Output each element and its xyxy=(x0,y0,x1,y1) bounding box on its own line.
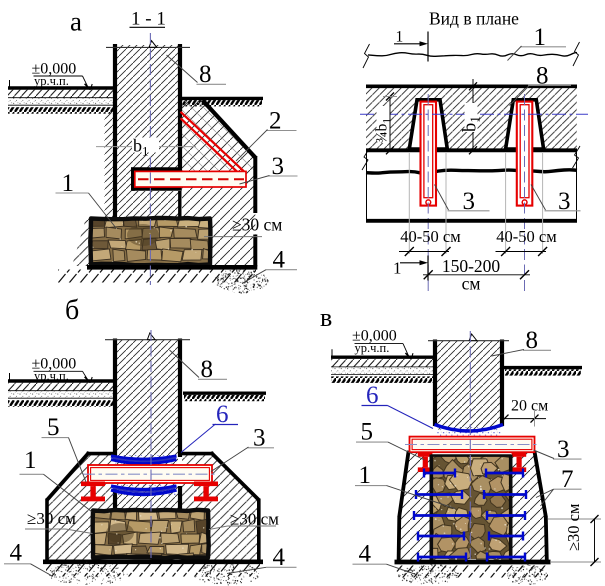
svg-text:Вид в плане: Вид в плане xyxy=(429,9,519,29)
svg-text:а: а xyxy=(70,7,82,37)
svg-text:1: 1 xyxy=(393,259,402,278)
svg-text:≥30 см: ≥30 см xyxy=(232,215,282,235)
svg-text:1 - 1: 1 - 1 xyxy=(131,9,166,30)
svg-text:см: см xyxy=(462,274,481,294)
svg-text:в: в xyxy=(320,303,332,332)
svg-text:б: б xyxy=(65,295,79,326)
svg-text:20 см: 20 см xyxy=(511,398,548,415)
svg-text:5: 5 xyxy=(361,419,374,446)
svg-text:5: 5 xyxy=(47,414,60,441)
svg-text:4: 4 xyxy=(10,540,23,567)
svg-text:4: 4 xyxy=(359,541,372,568)
svg-text:≥30 см: ≥30 см xyxy=(27,509,76,528)
svg-text:40-50 см: 40-50 см xyxy=(496,227,557,246)
svg-text:1: 1 xyxy=(359,462,372,489)
svg-text:≥30 см: ≥30 см xyxy=(564,503,583,551)
svg-text:40-50 см: 40-50 см xyxy=(400,227,461,246)
svg-text:1: 1 xyxy=(24,447,37,474)
svg-text:1: 1 xyxy=(396,29,404,46)
